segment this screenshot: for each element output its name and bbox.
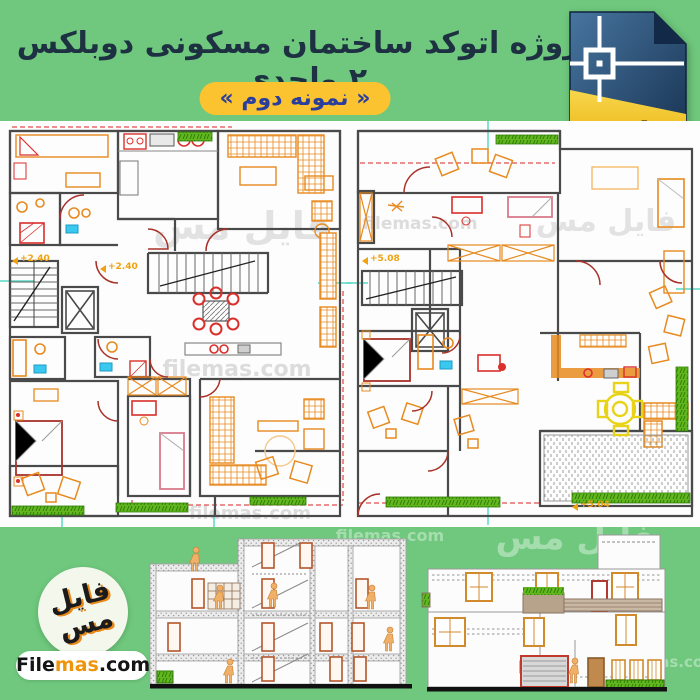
site-name: Filemas.com xyxy=(16,651,148,680)
ceiling-fan xyxy=(388,201,404,211)
sample-badge: « نمونه دوم » xyxy=(200,82,391,115)
kitchen xyxy=(118,134,218,195)
svg-text:filemas.com: filemas.com xyxy=(189,503,311,524)
site-name-accent: mas xyxy=(55,654,99,676)
red-desk xyxy=(478,355,506,371)
staircase xyxy=(366,271,456,305)
second-floor-plan: +5.08 +5.04 xyxy=(346,121,700,525)
svg-text:+2.40: +2.40 xyxy=(108,262,138,272)
roof-terrace xyxy=(544,383,688,501)
dining-table xyxy=(194,288,239,335)
bookshelf xyxy=(208,583,240,609)
ground-line xyxy=(150,684,412,689)
promo-image: پروژه اتوکد ساختمان مسکونی دوبلکس ۲ واحد… xyxy=(0,0,700,700)
staircase-left xyxy=(10,261,58,327)
svg-text:filemas.com: filemas.com xyxy=(362,214,477,234)
hall-fixtures xyxy=(66,208,90,233)
bedroom-bottom-left xyxy=(362,331,410,391)
svg-text:+2.40: +2.40 xyxy=(20,254,50,264)
svg-text:فایل مس: فایل مس xyxy=(153,204,331,248)
front-elevation xyxy=(422,535,667,692)
tv-lounge xyxy=(210,397,324,485)
floor-plans-panel: فایل مس فایل مس filemas.com filemas.com … xyxy=(0,121,700,527)
filemas-logo: فایل مس xyxy=(38,567,128,657)
first-floor-plan: +2.40 +2.40 xyxy=(0,127,352,527)
ground-line xyxy=(427,687,667,692)
bathroom-2 xyxy=(13,340,46,376)
logo-calligraphy: فایل مس xyxy=(32,573,133,650)
bathroom-3 xyxy=(100,342,146,377)
svg-text:+5.04: +5.04 xyxy=(580,500,610,510)
grille-windows xyxy=(612,660,661,680)
site-name-prefix: File xyxy=(16,654,55,676)
svg-text:فایل مس: فایل مس xyxy=(536,204,676,239)
kitchen xyxy=(556,335,640,378)
kitchen-island xyxy=(185,343,281,355)
sitting-groups xyxy=(368,403,478,448)
site-name-suffix: .com xyxy=(99,654,150,676)
center-lines xyxy=(0,281,352,527)
grass-strips xyxy=(12,132,306,515)
master-bedroom xyxy=(14,389,62,486)
garage-door xyxy=(521,656,568,687)
planter xyxy=(157,671,173,683)
kid-bedroom xyxy=(132,401,184,489)
entry-door xyxy=(588,658,604,687)
elevator xyxy=(66,291,94,329)
walls xyxy=(10,131,340,516)
building-section xyxy=(150,539,412,689)
svg-text:+5.08: +5.08 xyxy=(370,254,400,264)
drafting-table xyxy=(14,135,108,187)
bathroom-1 xyxy=(17,199,44,243)
staircase-center xyxy=(159,253,258,293)
level-markers: +2.40 +2.40 xyxy=(12,254,138,273)
shrubs xyxy=(606,680,664,688)
